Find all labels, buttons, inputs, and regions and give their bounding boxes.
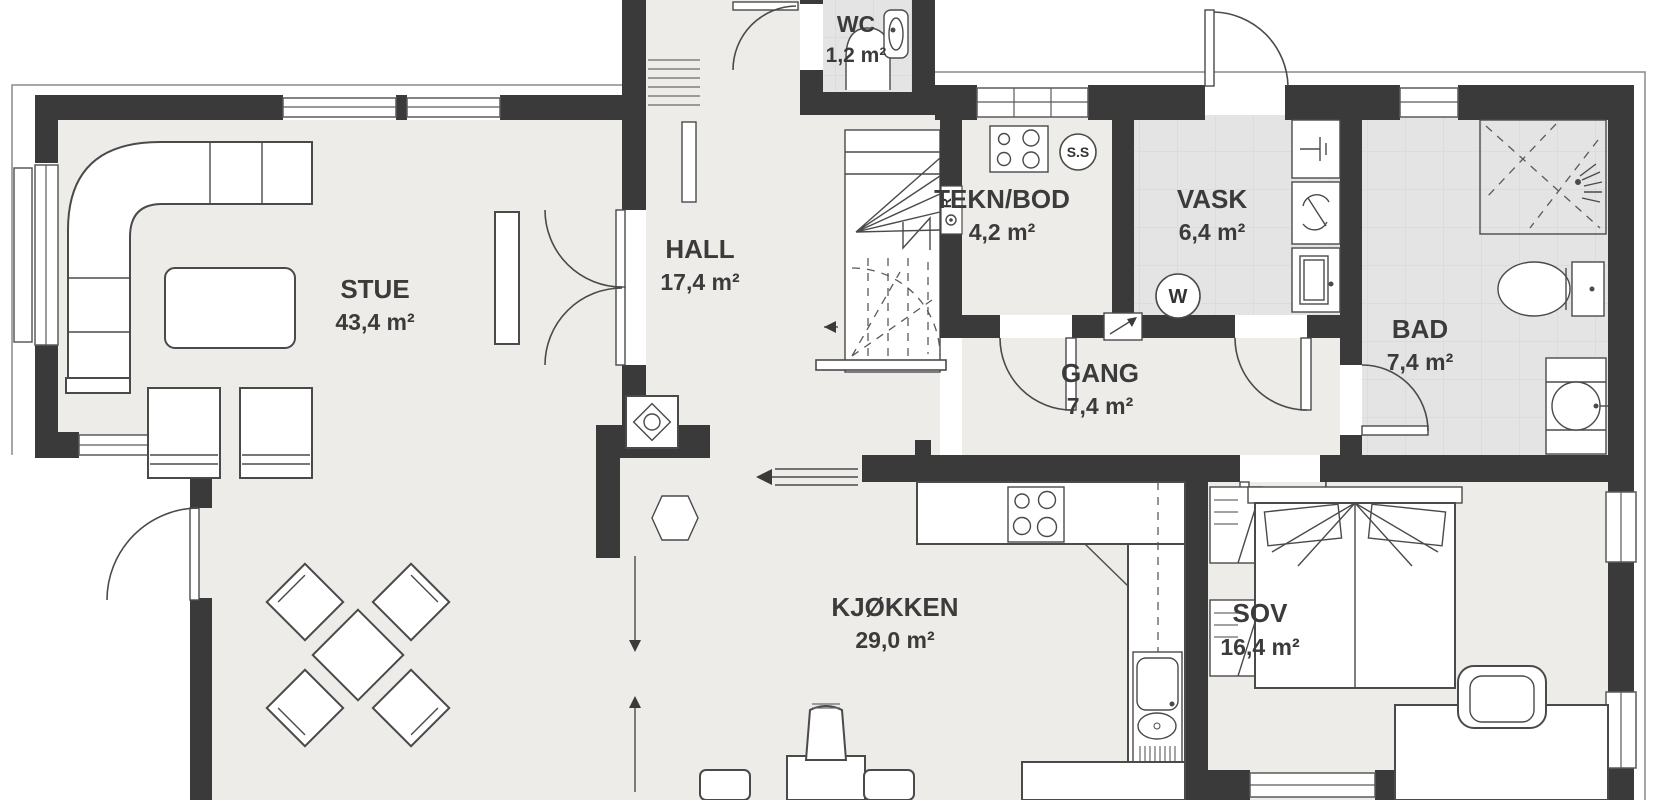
washing-machine-label: W	[1169, 286, 1188, 308]
kitchen-chair	[700, 770, 750, 800]
sofa-armrest	[66, 378, 130, 393]
stove-icon	[1008, 487, 1064, 542]
stue-window-left-sill	[14, 168, 32, 342]
room-area-gang: 7,4 m²	[1067, 393, 1134, 419]
room-area-stue: 43,4 m²	[335, 309, 415, 335]
kitchen-chair	[806, 706, 846, 760]
vent-symbol	[1104, 313, 1142, 340]
washing-machine-symbol: W	[1156, 274, 1200, 318]
headboard	[1248, 487, 1462, 503]
room-area-hall: 17,4 m²	[660, 269, 740, 295]
room-area-wc: 1,2 m²	[826, 44, 887, 67]
bathroom-sink-icon	[1546, 358, 1608, 454]
laundry-counter	[1292, 120, 1340, 312]
room-area-tekn: 4,2 m²	[969, 219, 1036, 245]
armchair	[148, 388, 220, 478]
room-area-vask: 6,4 m²	[1179, 219, 1246, 245]
pillow	[1264, 504, 1341, 546]
toilet-icon	[1498, 262, 1604, 316]
central-vacuum-symbol: S.S	[1060, 134, 1096, 170]
room-label-gang: GANG	[1061, 358, 1139, 388]
room-area-sov: 16,4 m²	[1220, 634, 1300, 660]
coffee-table	[165, 268, 295, 348]
room-label-stue: STUE	[340, 274, 409, 304]
room-label-kjokken: KJØKKEN	[831, 592, 958, 622]
porch-area	[0, 455, 190, 800]
room-label-sov: SOV	[1233, 598, 1289, 628]
gang-floor	[962, 338, 1340, 455]
passage-floor	[622, 430, 646, 800]
fireplace	[626, 396, 678, 448]
kitchen-island	[1022, 762, 1185, 800]
floor-plan-page: S.S R W	[0, 0, 1670, 800]
cistern-icon	[884, 10, 908, 58]
kitchen-chair	[864, 770, 914, 800]
room-label-tekn: TEKN/BOD	[934, 184, 1070, 214]
hall-bench	[682, 122, 696, 202]
room-label-hall: HALL	[665, 234, 734, 264]
room-label-bad: BAD	[1392, 314, 1448, 344]
armchair	[240, 388, 312, 478]
valve-box	[1292, 182, 1340, 244]
pillow	[1368, 504, 1445, 546]
room-area-bad: 7,4 m²	[1387, 349, 1454, 375]
stair-rail	[816, 360, 946, 370]
appliance-icon	[990, 126, 1048, 172]
sideboard	[495, 212, 519, 344]
floor-plan-drawing: S.S R W	[0, 0, 1670, 800]
kitchen-table	[787, 756, 865, 800]
room-area-kjokken: 29,0 m²	[855, 627, 935, 653]
room-label-wc: WC	[837, 11, 875, 37]
stool	[652, 496, 698, 540]
room-label-vask: VASK	[1177, 184, 1248, 214]
central-vacuum-label: S.S	[1067, 144, 1090, 160]
